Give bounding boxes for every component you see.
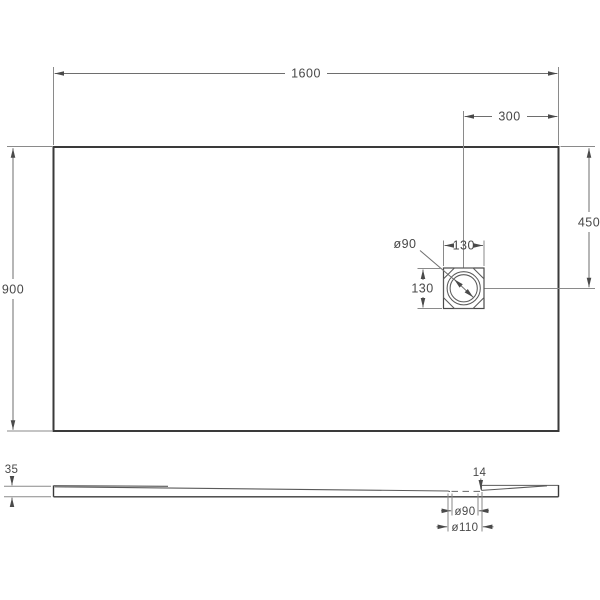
top-view: 1600 300 900 450 ø90 130: [2, 67, 600, 432]
dim-label-drain-offset-top: 450: [578, 216, 600, 230]
dim-label-drain-box-height: 130: [411, 282, 433, 296]
tray-outline-top-view: [54, 147, 559, 431]
shower-tray-drawing: 1600 300 900 450 ø90 130: [0, 0, 600, 600]
dim-label-drain-hole-diameter: ø90: [454, 506, 475, 518]
tray-floor-slope-right: [482, 486, 548, 491]
dim-label-drain-lip-height: 14: [473, 467, 487, 479]
drain-detail-top-view: ø90 130 130: [393, 237, 484, 309]
drain-recess-step-left: [448, 491, 450, 492]
drain-diameter-arrow-lower: [464, 288, 474, 297]
tray-floor-slope-left: [55, 487, 449, 491]
dim-label-drain-recess-diameter: ø110: [452, 522, 479, 534]
tray-top-rim-left: [54, 486, 169, 487]
dim-label-drain-box-width: 130: [453, 239, 475, 253]
dim-label-drain-offset-right: 300: [498, 110, 520, 124]
technical-drawing-canvas: 1600 300 900 450 ø90 130: [0, 0, 600, 600]
dim-label-overall-width: 1600: [291, 67, 321, 81]
drain-diameter-arrow-upper: [454, 279, 464, 288]
leader-line-drain-diameter: [420, 251, 454, 280]
dim-label-tray-height: 35: [5, 464, 19, 476]
dim-label-overall-depth: 900: [2, 283, 24, 297]
side-view: 35 14 ø90 ø110: [4, 464, 559, 534]
dim-label-drain-diameter: ø90: [393, 237, 416, 251]
